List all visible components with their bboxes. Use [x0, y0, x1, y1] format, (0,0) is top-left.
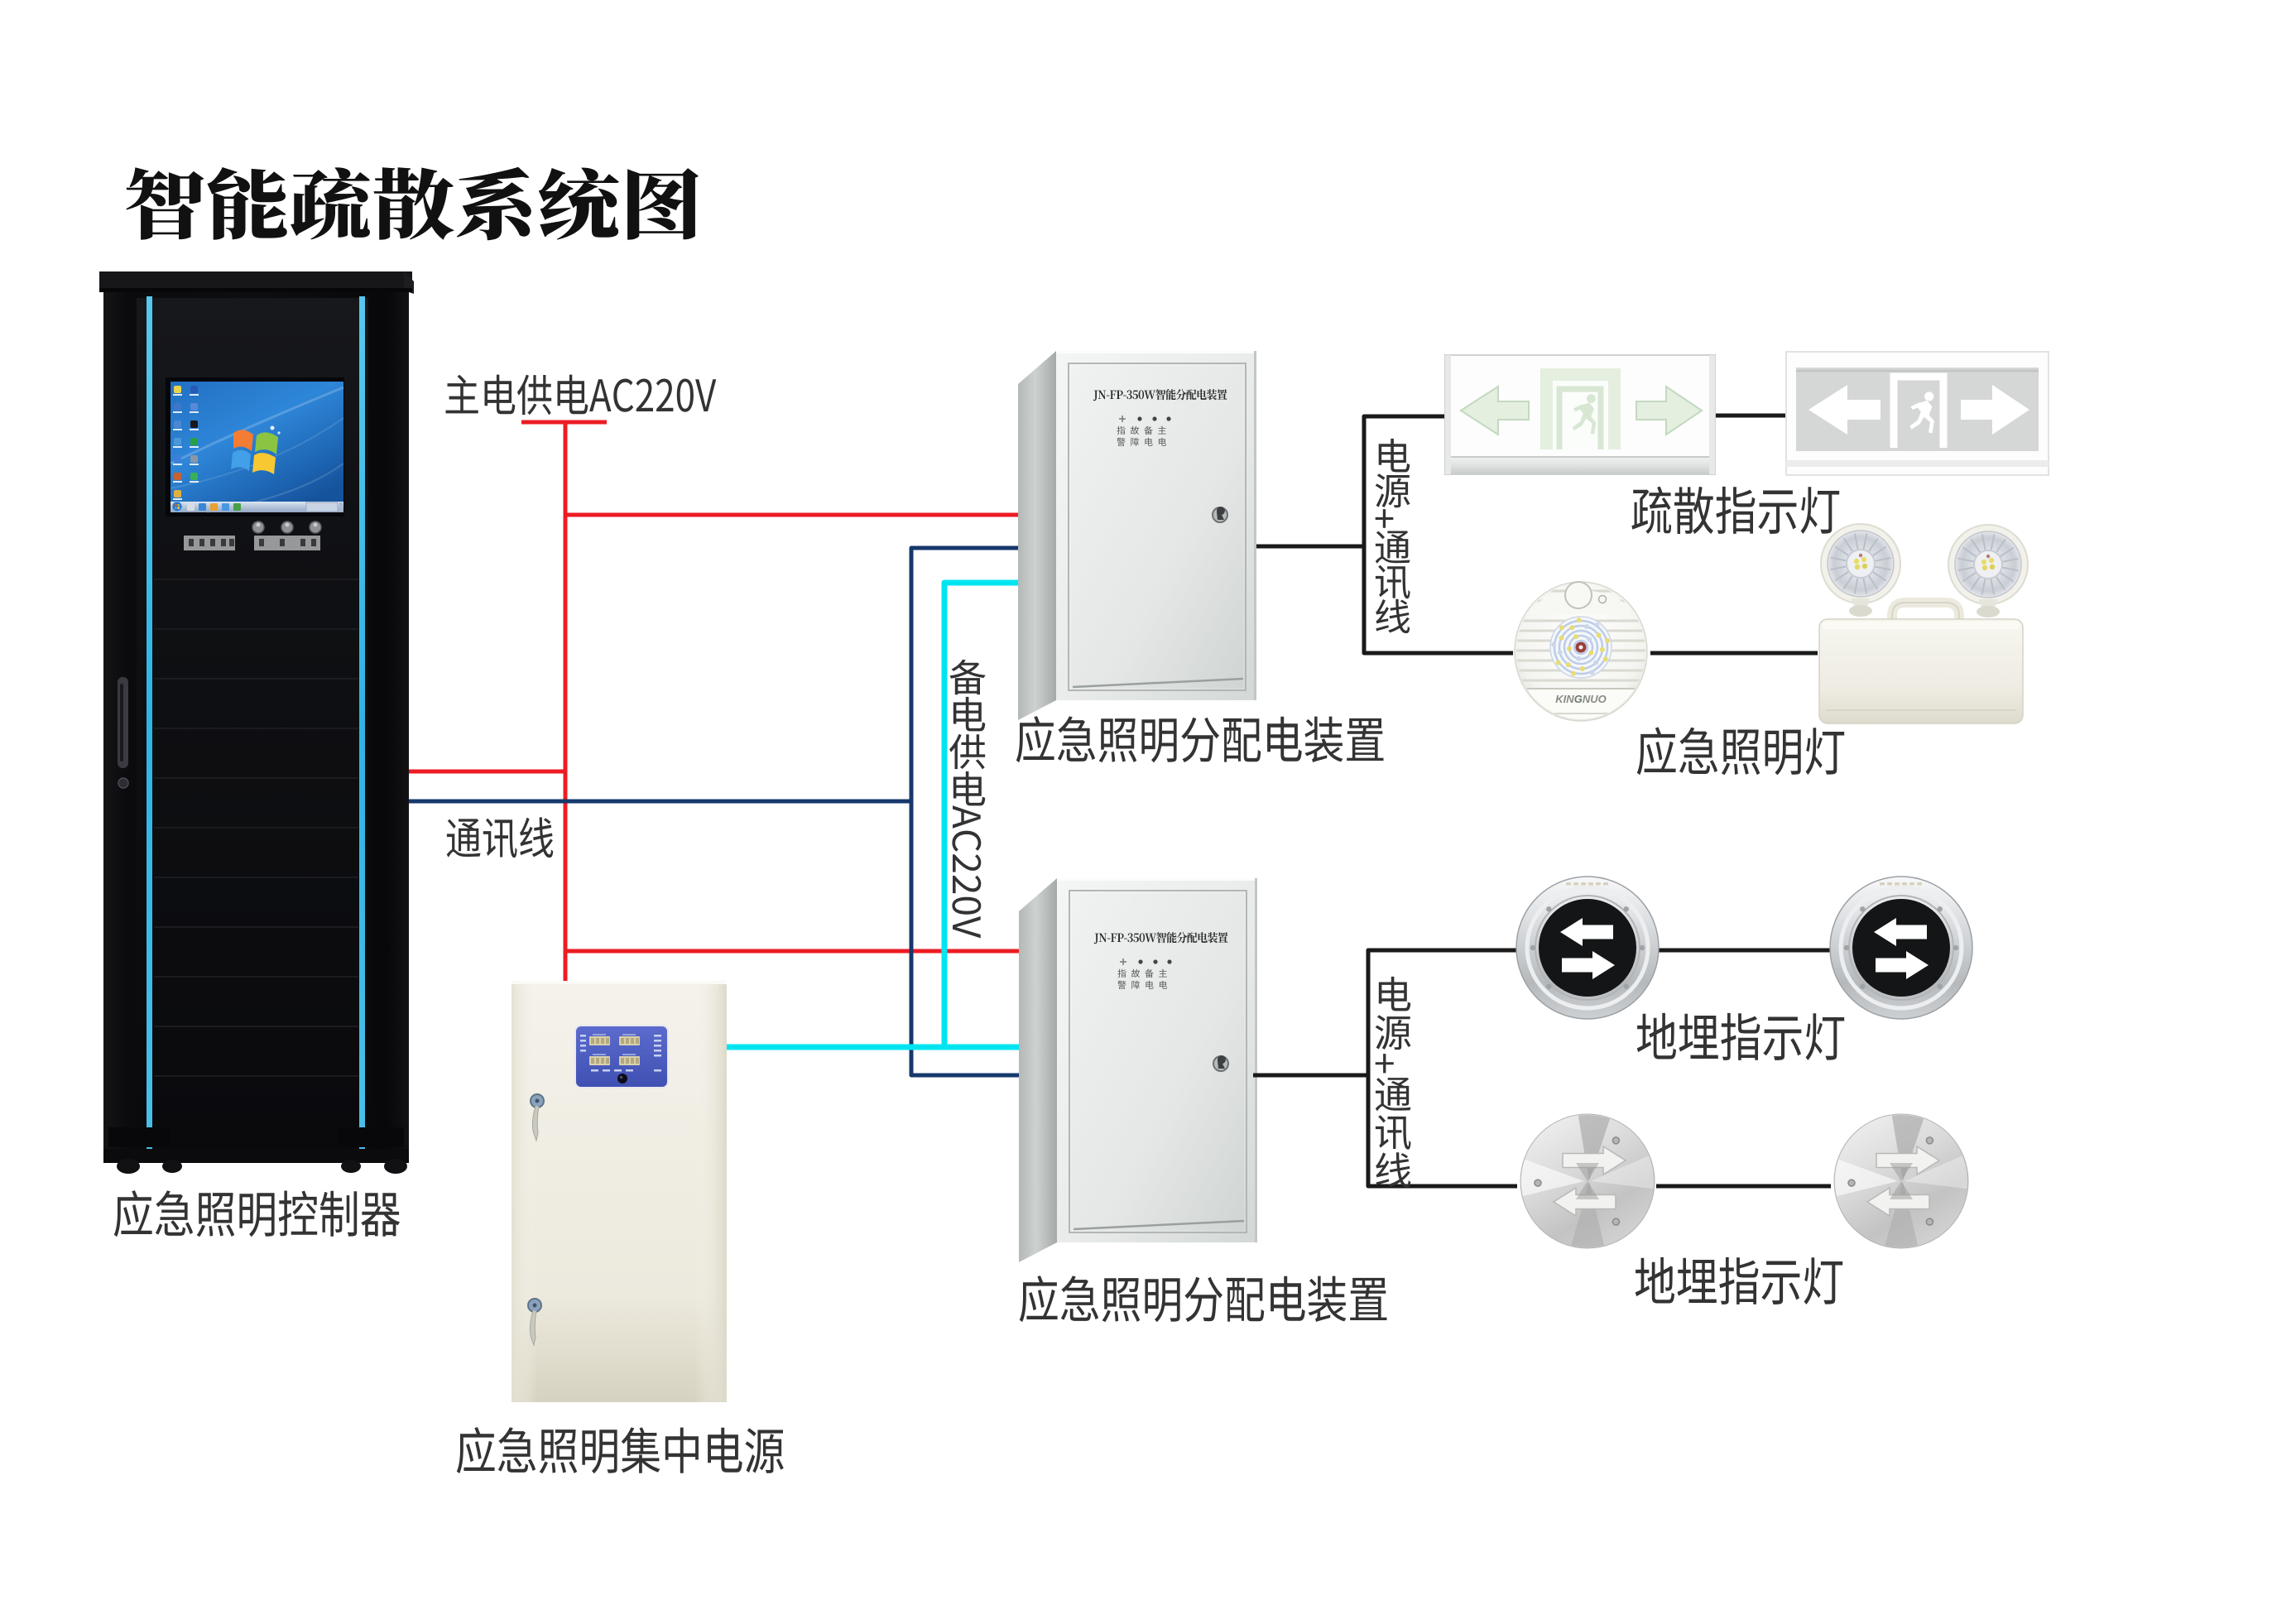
svg-text:KINGNUO: KINGNUO	[1555, 693, 1606, 705]
